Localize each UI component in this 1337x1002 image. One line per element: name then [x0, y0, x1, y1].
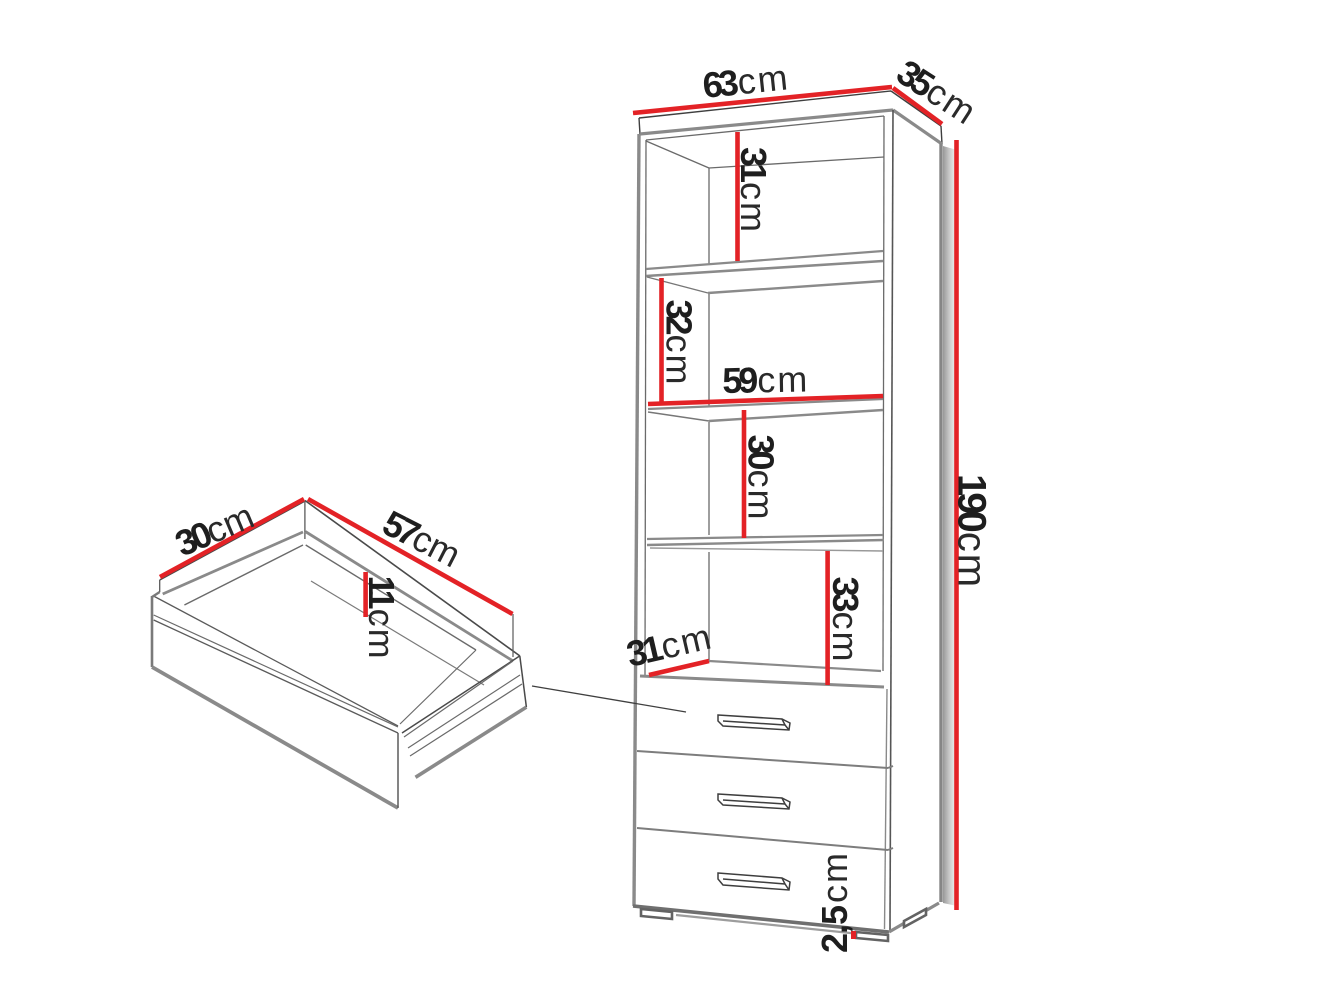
svg-text:59cm: 59cm: [722, 358, 810, 401]
svg-text:31cm: 31cm: [733, 147, 774, 234]
svg-text:30cm: 30cm: [741, 435, 782, 522]
svg-text:33cm: 33cm: [825, 577, 866, 664]
svg-text:2,5cm: 2,5cm: [814, 851, 855, 953]
svg-text:32cm: 32cm: [659, 300, 700, 387]
svg-text:11cm: 11cm: [361, 576, 402, 661]
svg-text:190cm: 190cm: [950, 474, 994, 589]
